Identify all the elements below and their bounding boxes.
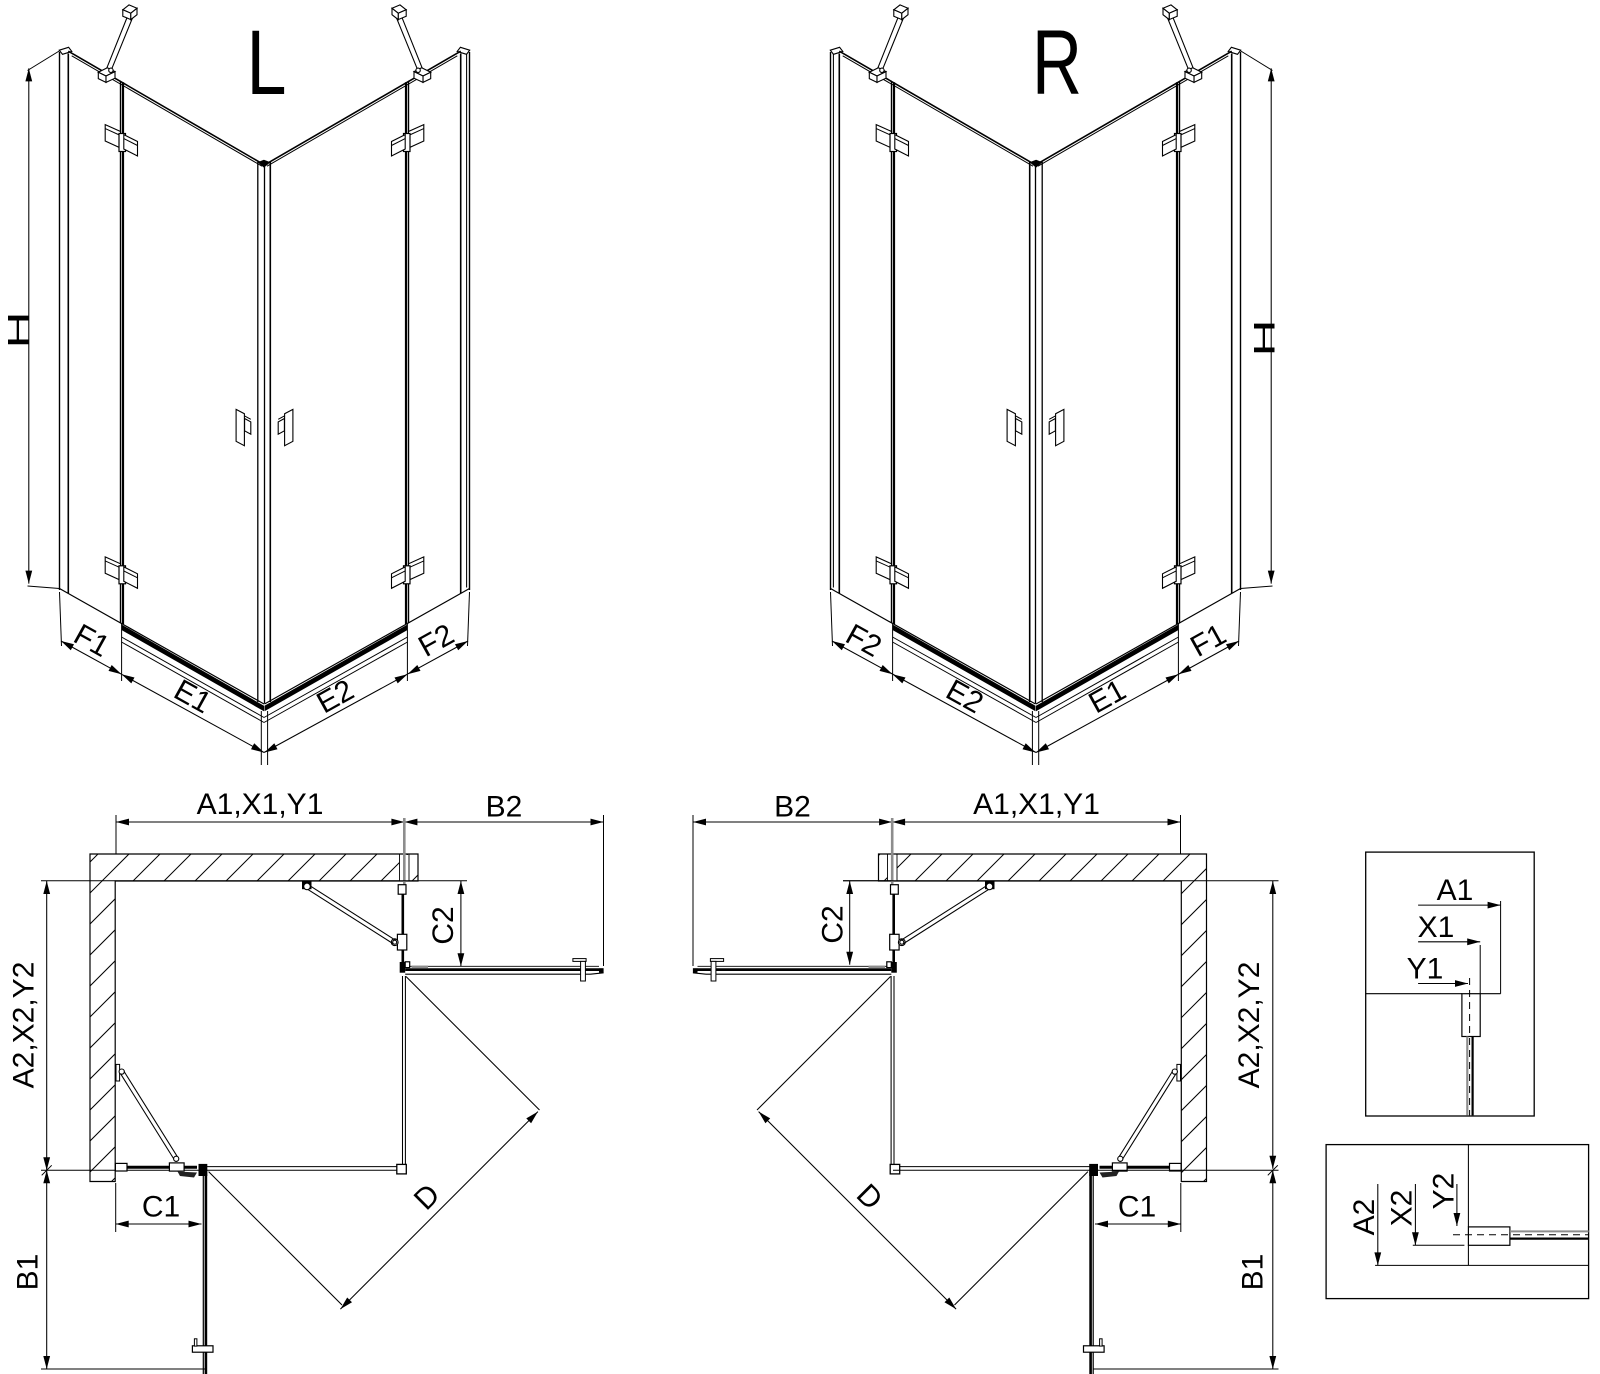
svg-text:A2,X2,Y2: A2,X2,Y2 bbox=[1233, 962, 1266, 1089]
svg-text:R: R bbox=[1032, 12, 1082, 114]
svg-text:X2: X2 bbox=[1386, 1190, 1419, 1227]
svg-text:L: L bbox=[247, 12, 287, 114]
svg-text:Y2: Y2 bbox=[1428, 1173, 1461, 1210]
svg-text:A2,X2,Y2: A2,X2,Y2 bbox=[8, 962, 41, 1089]
svg-text:B1: B1 bbox=[12, 1254, 45, 1291]
svg-text:H: H bbox=[3, 312, 36, 349]
svg-text:C2: C2 bbox=[817, 905, 850, 943]
svg-text:A1,X1,Y1: A1,X1,Y1 bbox=[197, 788, 324, 821]
svg-text:Y1: Y1 bbox=[1407, 953, 1444, 986]
svg-text:B1: B1 bbox=[1237, 1254, 1270, 1291]
svg-text:H: H bbox=[1249, 320, 1282, 357]
svg-text:A1,X1,Y1: A1,X1,Y1 bbox=[973, 788, 1100, 821]
svg-text:A1: A1 bbox=[1437, 874, 1474, 907]
svg-text:C2: C2 bbox=[427, 906, 460, 944]
svg-text:B2: B2 bbox=[486, 791, 523, 824]
svg-text:A2: A2 bbox=[1348, 1199, 1381, 1236]
svg-text:C1: C1 bbox=[1118, 1191, 1156, 1224]
svg-text:C1: C1 bbox=[142, 1191, 180, 1224]
svg-text:X1: X1 bbox=[1418, 911, 1455, 944]
svg-text:B2: B2 bbox=[774, 791, 811, 824]
